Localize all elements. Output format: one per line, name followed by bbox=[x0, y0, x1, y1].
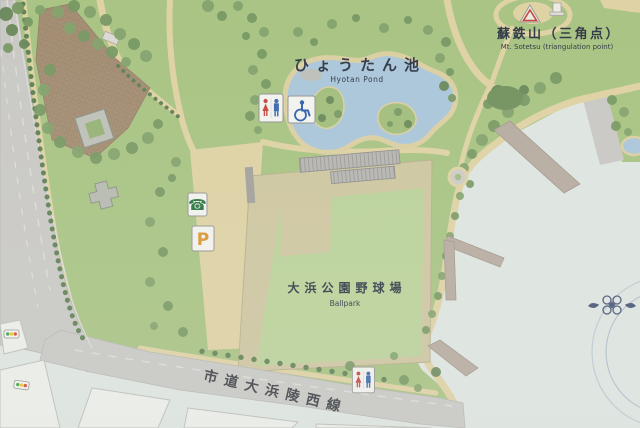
photo-haze-overlay bbox=[0, 0, 640, 428]
park-map-photo: ☎ P ひょうたん池 Hyotan Pond 蘇鉄山（三角点） Mt. Sote… bbox=[0, 0, 640, 428]
